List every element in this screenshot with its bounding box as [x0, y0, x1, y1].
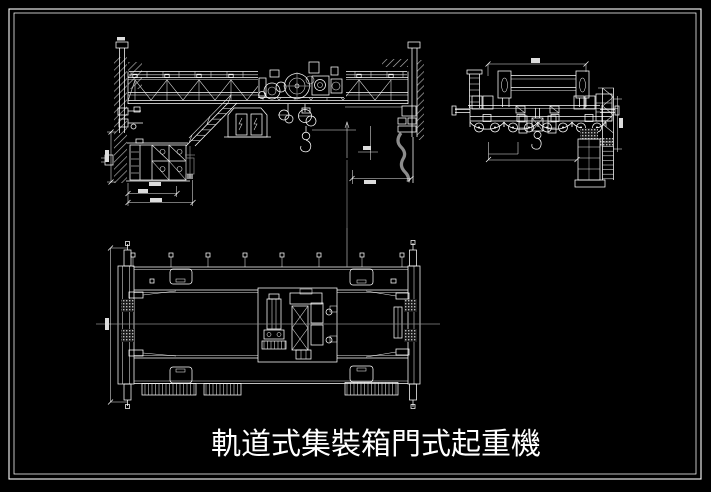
- hanging-cable: [185, 146, 195, 179]
- gratings: [142, 383, 398, 396]
- front-elevation-view: [101, 37, 589, 405]
- hook-block: [278, 104, 356, 152]
- hook-icon: [532, 138, 541, 149]
- plan-view: [96, 228, 440, 409]
- plan-trolley: [258, 288, 337, 362]
- electrical-house: [224, 108, 271, 137]
- side-view: [452, 58, 623, 187]
- right-leg-hatch: [417, 60, 424, 140]
- end-carriage-right: [408, 241, 420, 409]
- hook-sheave: [302, 132, 310, 140]
- end-carriage-left: [118, 242, 134, 409]
- cable-drum-mast: [467, 70, 482, 108]
- drawing-title: 軌道式集裝箱門式起重機: [211, 427, 541, 462]
- hook-icon: [301, 140, 311, 152]
- trolley-hoist-machinery: [258, 62, 346, 100]
- walkway-ticks: [131, 253, 404, 267]
- festoon-cable: [398, 133, 409, 182]
- left-leg-hatch: [114, 57, 127, 183]
- side-view-top-dimension: [488, 58, 586, 76]
- buffer-right: [615, 106, 619, 115]
- crane-drawing: 軌道式集裝箱門式起重機: [0, 0, 711, 492]
- trolley-drum-assembly: [498, 71, 589, 107]
- cad-canvas: 軌道式集裝箱門式起重機: [0, 0, 711, 492]
- buffer-left: [452, 106, 456, 115]
